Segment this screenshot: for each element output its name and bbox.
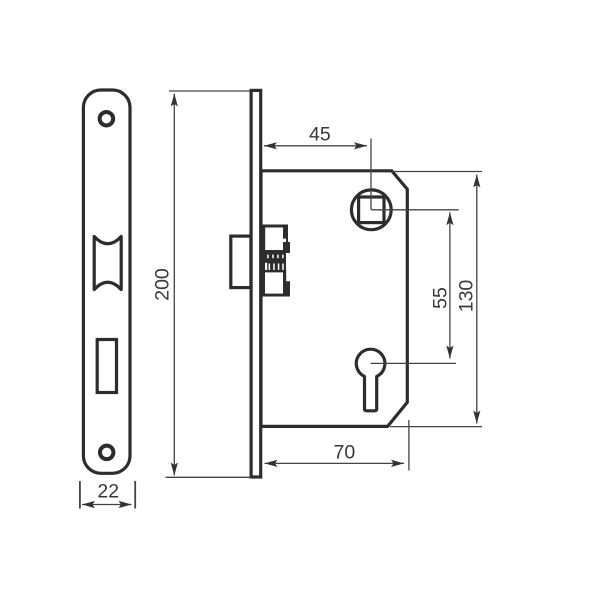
svg-text:55: 55: [429, 287, 451, 309]
svg-text:70: 70: [334, 441, 356, 463]
svg-text:200: 200: [152, 268, 174, 301]
svg-text:130: 130: [455, 280, 477, 313]
svg-text:45: 45: [309, 123, 331, 145]
svg-text:22: 22: [97, 481, 119, 503]
